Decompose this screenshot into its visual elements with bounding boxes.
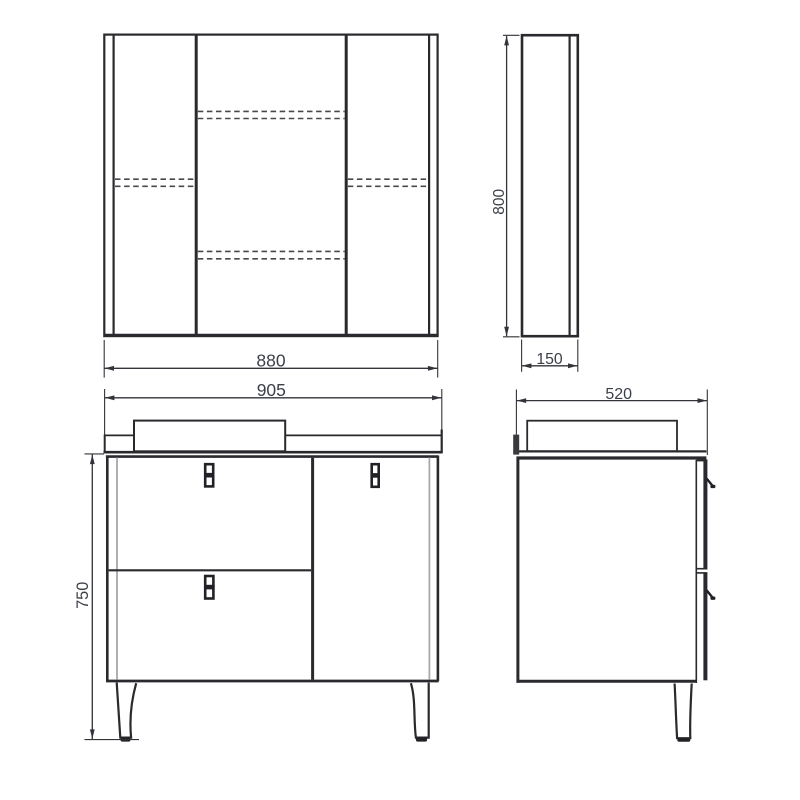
svg-text:150: 150 [536, 351, 563, 368]
svg-text:905: 905 [257, 380, 286, 400]
svg-text:750: 750 [74, 582, 92, 609]
svg-text:520: 520 [605, 386, 632, 403]
svg-text:800: 800 [491, 188, 508, 214]
svg-text:880: 880 [256, 351, 285, 371]
